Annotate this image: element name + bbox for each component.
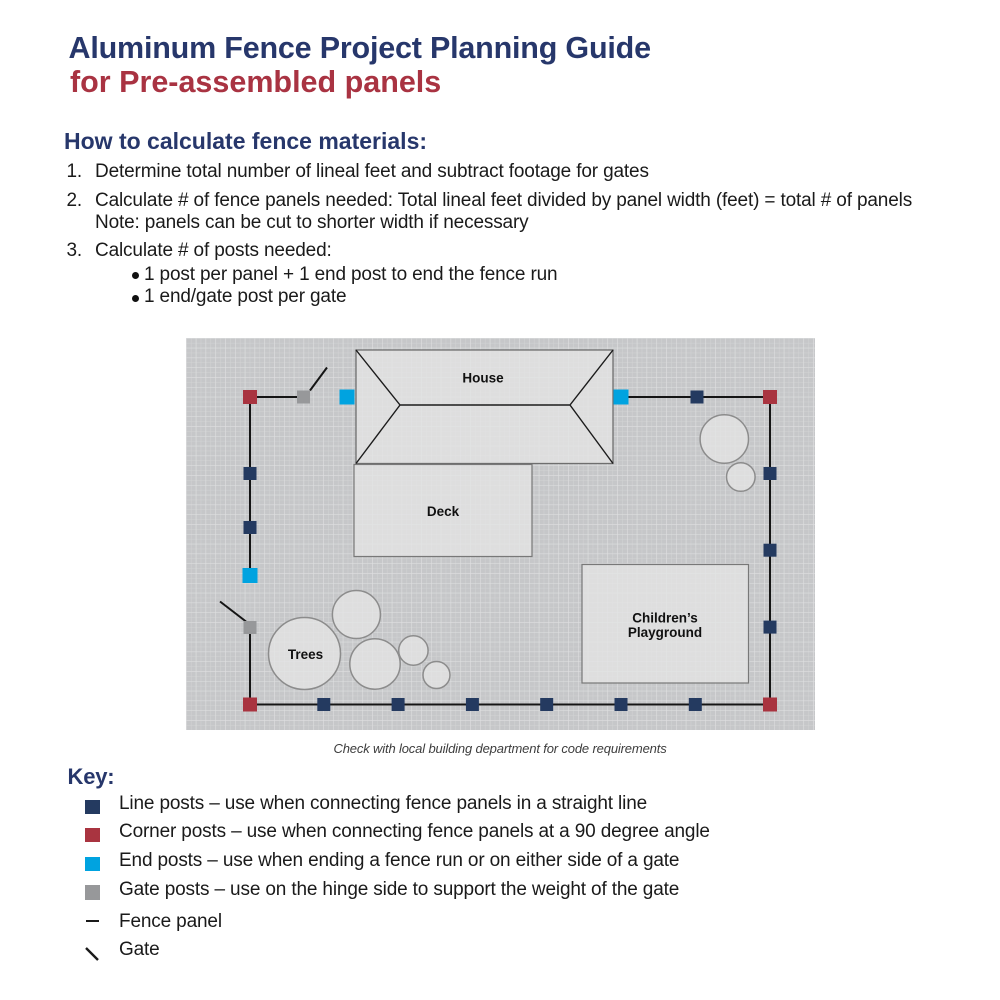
svg-text:Children’s: Children’s <box>632 610 698 625</box>
svg-text:Playground: Playground <box>628 625 702 640</box>
svg-text:Deck: Deck <box>427 504 460 519</box>
svg-text:House: House <box>462 371 504 386</box>
svg-text:Trees: Trees <box>288 647 323 662</box>
